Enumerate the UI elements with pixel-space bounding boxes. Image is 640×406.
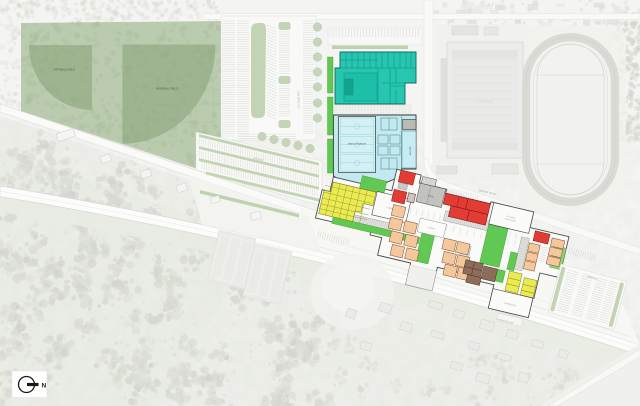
svg-text:MAIN GYMNASIUM: MAIN GYMNASIUM [348,143,366,146]
svg-text:BUS DROP OFF: BUS DROP OFF [297,91,299,109]
svg-text:AUX GYM: AUX GYM [409,147,412,156]
svg-text:SOFTBALL FIELD: SOFTBALL FIELD [53,68,74,72]
svg-text:N: N [42,382,47,389]
svg-text:TITANS: TITANS [477,99,493,104]
svg-text:BASEBALL FIELD: BASEBALL FIELD [156,87,177,91]
